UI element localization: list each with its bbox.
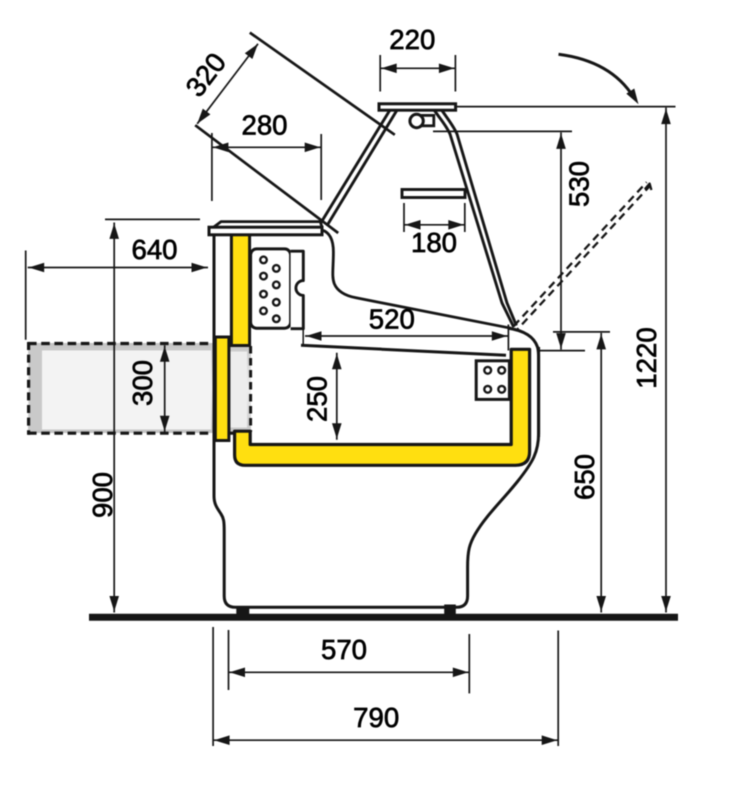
svg-text:220: 220 [389, 24, 435, 55]
svg-text:900: 900 [87, 472, 118, 518]
svg-text:520: 520 [369, 304, 415, 335]
svg-text:280: 280 [241, 109, 287, 140]
svg-text:250: 250 [302, 376, 333, 422]
svg-text:1220: 1220 [631, 327, 662, 388]
svg-text:790: 790 [353, 702, 399, 733]
svg-text:650: 650 [569, 454, 600, 500]
svg-text:640: 640 [131, 234, 177, 265]
svg-text:570: 570 [321, 634, 367, 665]
svg-text:180: 180 [411, 227, 457, 258]
svg-text:530: 530 [563, 161, 594, 207]
svg-text:300: 300 [127, 360, 158, 406]
svg-text:320: 320 [179, 47, 232, 102]
